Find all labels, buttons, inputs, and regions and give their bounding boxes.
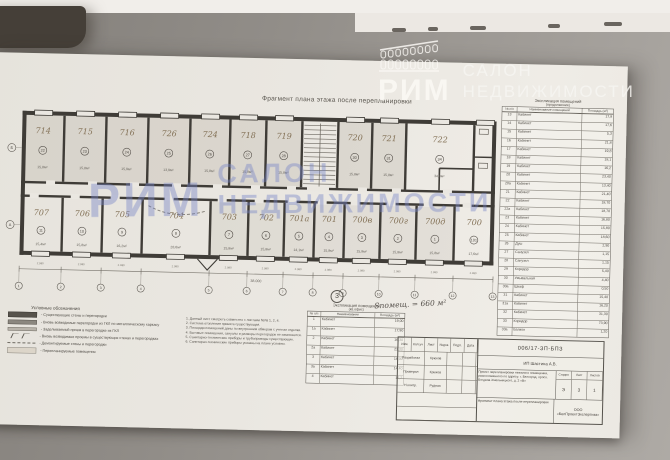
svg-text:705: 705 xyxy=(115,210,130,219)
svg-text:700д: 700д xyxy=(425,217,446,226)
svg-text:6: 6 xyxy=(265,234,267,238)
svg-text:703: 703 xyxy=(222,212,237,221)
title-block: Изм.Кол.учЛист№док.Подп.Дата РазработалК… xyxy=(396,336,603,423)
svg-text:15,8м²: 15,8м² xyxy=(392,250,403,254)
handwritten-area-note: Sпомещ. = 660 м² xyxy=(374,299,518,320)
svg-text:4: 4 xyxy=(140,287,142,291)
svg-text:10: 10 xyxy=(80,230,84,234)
svg-text:34,9м²: 34,9м² xyxy=(434,174,445,178)
svg-text:28: 28 xyxy=(282,154,286,158)
svg-text:716: 716 xyxy=(119,128,134,137)
svg-text:2.980: 2.980 xyxy=(470,271,478,275)
svg-text:17,6м²: 17,6м² xyxy=(468,252,479,256)
legend-swatch-replan xyxy=(7,347,36,354)
svg-text:2.980: 2.980 xyxy=(431,270,439,274)
logo-line-salon: САЛОН xyxy=(463,61,635,81)
stamp-stage-table: Стадия Лист Листов Э 3 1 xyxy=(556,371,603,400)
svg-text:700в: 700в xyxy=(352,215,372,224)
svg-text:15,8м²: 15,8м² xyxy=(349,172,360,176)
svg-text:9: 9 xyxy=(121,230,123,234)
svg-text:15,4м²: 15,4м² xyxy=(35,242,46,246)
svg-text:701а: 701а xyxy=(289,214,309,223)
svg-text:15,8м²: 15,8м² xyxy=(204,169,215,173)
svg-text:13: 13 xyxy=(491,295,495,299)
svg-text:2.980: 2.980 xyxy=(394,269,402,273)
svg-text:704: 704 xyxy=(169,211,184,220)
top-white-strip xyxy=(0,0,670,13)
stamp-project-description: Проект перепланировки нежилого помещения… xyxy=(476,369,556,399)
notes: 1. Данный лист смотреть совместно с лист… xyxy=(185,317,304,375)
svg-text:8: 8 xyxy=(312,291,314,295)
sheets-label: Листов xyxy=(587,372,603,380)
svg-text:12: 12 xyxy=(451,294,455,298)
svg-text:11: 11 xyxy=(39,229,43,233)
svg-text:2.980: 2.980 xyxy=(358,268,366,272)
svg-text:А: А xyxy=(9,223,12,227)
svg-text:13,9м²: 13,9м² xyxy=(163,168,174,172)
floor-plan: 7142215,8м²7152315,8м²7162415,9м²7262513… xyxy=(0,102,504,313)
svg-text:Б: Б xyxy=(11,146,14,150)
svg-text:2.980: 2.980 xyxy=(262,266,270,270)
svg-text:2: 2 xyxy=(397,237,399,241)
svg-text:38.000: 38.000 xyxy=(250,279,261,283)
photo-smudge xyxy=(604,22,622,26)
svg-text:15,8м²: 15,8м² xyxy=(37,165,48,169)
logo-brand-text: РИМ xyxy=(378,77,451,104)
svg-text:26: 26 xyxy=(208,152,212,156)
svg-text:7: 7 xyxy=(228,233,230,237)
photo-smudge xyxy=(392,28,406,32)
svg-text:15,8м²: 15,8м² xyxy=(383,173,394,177)
stage-value: Э xyxy=(556,379,572,399)
svg-text:714: 714 xyxy=(35,126,50,135)
agency-logo: РИМ САЛОН НЕДВИЖИМОСТИ xyxy=(378,38,635,104)
svg-text:724: 724 xyxy=(202,130,217,139)
svg-text:23: 23 xyxy=(83,150,87,154)
svg-text:2.980: 2.980 xyxy=(37,261,45,265)
svg-text:702: 702 xyxy=(259,213,274,222)
svg-text:5: 5 xyxy=(298,234,300,238)
svg-text:2.980: 2.980 xyxy=(172,264,180,268)
svg-text:2.980: 2.980 xyxy=(295,267,303,271)
svg-text:7: 7 xyxy=(282,290,284,294)
drawing-sheet: Фрагмент плана этажа после перепланировк… xyxy=(0,52,628,438)
logo-line-realty: НЕДВИЖИМОСТИ xyxy=(463,82,635,102)
svg-text:2.980: 2.980 xyxy=(78,262,86,266)
svg-text:10: 10 xyxy=(377,292,381,296)
svg-text:4: 4 xyxy=(328,235,330,239)
svg-text:8: 8 xyxy=(175,232,177,236)
legend-swatch-existing xyxy=(8,312,37,318)
svg-text:27: 27 xyxy=(246,153,250,157)
stamp-company: ООО «БелПроектЭкспертиза» xyxy=(554,399,602,424)
sheets-value: 1 xyxy=(587,380,603,400)
stamp-sheet-title: Фрагмент плана этажа после перепланировк… xyxy=(476,398,555,424)
svg-text:3: 3 xyxy=(361,236,363,240)
explication-table: № п/пНаименованиеПлощадь (м²)1Кабинет19,… xyxy=(306,311,406,386)
svg-text:30: 30 xyxy=(353,156,357,160)
legend: Условные обозначения - Существующие стен… xyxy=(6,305,203,412)
svg-text:28,6м²: 28,6м² xyxy=(170,245,181,249)
svg-text:722: 722 xyxy=(432,135,447,144)
legend-item: - Перепланируемые помещения xyxy=(7,347,202,357)
svg-text:15,8м²: 15,8м² xyxy=(79,166,90,170)
legend-label: - Перепланируемые помещения xyxy=(40,349,95,354)
svg-text:15,8м²: 15,8м² xyxy=(242,170,253,174)
svg-text:5: 5 xyxy=(208,288,210,292)
svg-text:2: 2 xyxy=(60,285,62,289)
photo-smudge xyxy=(548,24,560,28)
sheet-label: Лист xyxy=(572,371,588,379)
svg-text:15,8м²: 15,8м² xyxy=(260,247,271,251)
svg-text:25: 25 xyxy=(167,151,171,155)
legend-swatch-sealed xyxy=(8,327,37,331)
explication-table-wrap: Экспликация помещений (кв.офис) № п/пНаи… xyxy=(304,302,406,460)
svg-text:706: 706 xyxy=(75,209,90,218)
svg-text:726: 726 xyxy=(161,129,176,138)
svg-text:34: 34 xyxy=(438,158,442,162)
svg-text:101: 101 xyxy=(471,238,477,242)
svg-text:2.980: 2.980 xyxy=(225,265,233,269)
legend-swatch-newgkl xyxy=(8,320,37,325)
svg-text:1: 1 xyxy=(434,238,436,242)
photo-smudge xyxy=(470,26,486,30)
svg-text:3: 3 xyxy=(100,286,102,290)
svg-text:24: 24 xyxy=(125,151,129,155)
svg-text:15,8м²: 15,8м² xyxy=(278,171,289,175)
table-row: 33аБалкон1,20 xyxy=(497,326,608,337)
svg-text:15,8м²: 15,8м² xyxy=(429,251,440,255)
table-row: 4Кабинет16,2 xyxy=(306,373,403,385)
legend-swatch-demol xyxy=(7,342,35,344)
svg-text:1: 1 xyxy=(18,284,20,288)
legend-swatch-doors xyxy=(8,333,36,339)
svg-text:700г: 700г xyxy=(389,216,409,225)
svg-text:15,8м²: 15,8м² xyxy=(356,249,367,253)
svg-text:15,8м²: 15,8м² xyxy=(76,243,87,247)
photo-scene: Фрагмент плана этажа после перепланировк… xyxy=(0,0,670,460)
svg-text:15,9м²: 15,9м² xyxy=(121,167,132,171)
svg-text:2.980: 2.980 xyxy=(118,263,126,267)
stamp-signature-grid: Изм.Кол.учЛист№док.Подп.Дата РазработалК… xyxy=(397,337,479,421)
stage-label: Стадия xyxy=(556,371,572,379)
legend-label: - Вновь возводимые проемы в существующих… xyxy=(40,334,159,341)
svg-text:700: 700 xyxy=(467,218,482,227)
svg-text:2.980: 2.980 xyxy=(325,268,333,272)
svg-text:719: 719 xyxy=(276,132,291,141)
legend-label: - Заделываемый проем в перегородке из ГК… xyxy=(41,327,119,333)
svg-text:6: 6 xyxy=(246,289,248,293)
svg-text:16,2м²: 16,2м² xyxy=(116,244,127,248)
svg-text:720: 720 xyxy=(347,133,362,142)
svg-text:715: 715 xyxy=(77,127,92,136)
svg-text:718: 718 xyxy=(240,131,255,140)
svg-text:11: 11 xyxy=(413,293,417,297)
svg-text:701: 701 xyxy=(322,215,337,224)
sheet-value: 3 xyxy=(571,380,587,400)
legend-label: - Демонтируемые стены и перегородки xyxy=(39,341,106,347)
dark-corner-shadow xyxy=(0,6,86,48)
svg-text:15,8м²: 15,8м² xyxy=(223,246,234,250)
colosseum-icon xyxy=(378,38,440,72)
svg-text:15,8м²: 15,8м² xyxy=(323,249,334,253)
photo-smudge xyxy=(428,27,438,31)
svg-text:721: 721 xyxy=(381,134,396,143)
svg-text:31: 31 xyxy=(387,156,391,160)
legend-label: - Существующие стены и перегородки xyxy=(41,313,107,319)
svg-text:22: 22 xyxy=(41,149,45,153)
svg-text:707: 707 xyxy=(34,208,50,217)
svg-text:14,1м²: 14,1м² xyxy=(293,248,304,252)
